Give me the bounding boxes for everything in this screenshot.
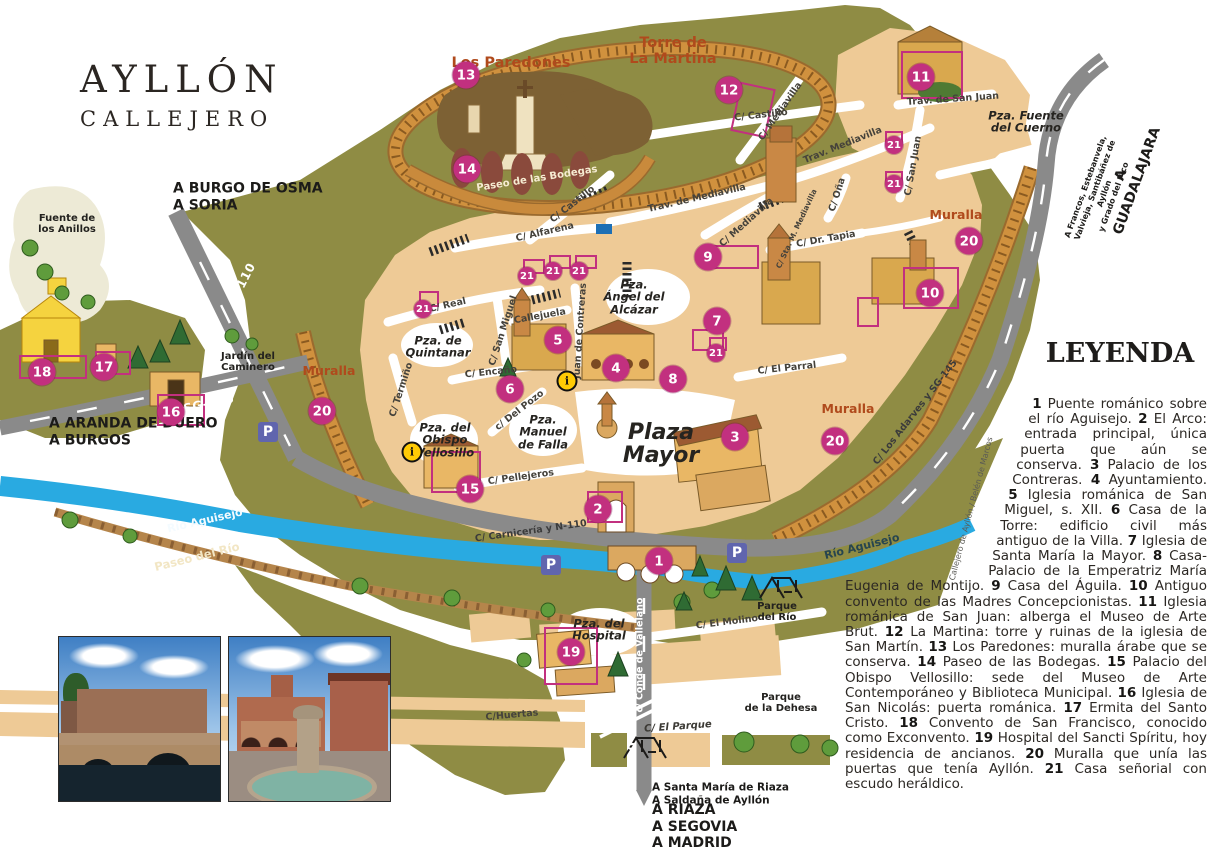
map-marker-21: 21 [414,300,432,318]
parking-icon: P [258,422,278,442]
legend-item-number: 17 [1063,700,1082,716]
map-marker-8: 8 [660,366,687,393]
map-marker-20: 20 [309,398,336,425]
photo-house [330,681,388,757]
legend-item-number: 6 [1111,502,1120,518]
legend-item-number: 15 [1107,654,1126,670]
map-marker-14: 14 [454,156,481,183]
map-marker-19: 19 [558,639,585,666]
map-marker-17: 17 [91,354,118,381]
legend-title: LEYENDA [1030,338,1210,369]
map-title: AYLLÓN CALLEJERO [80,58,260,131]
map-title-line1: AYLLÓN [80,58,260,101]
terrain-dehesa2 [591,733,627,767]
map-marker-20: 20 [956,228,983,255]
map-marker-21: 21 [707,344,725,362]
photo-fountain [297,715,319,773]
legend-item-number: 10 [1129,578,1148,594]
legend-item-number: 12 [885,624,904,640]
legend-item-number: 9 [991,578,1000,594]
map-marker-1: 1 [646,548,673,575]
ayllon-street-map: AYLLÓN CALLEJERO LEYENDA 1 Puente románi… [0,0,1210,850]
map-marker-2: 2 [585,496,612,523]
legend-body: 1 Puente románico sobre el río Aguisejo.… [845,397,1207,792]
map-marker-6: 6 [497,376,524,403]
map-marker-5: 5 [545,327,572,354]
parking-icon: P [541,555,561,575]
photo-fuente-plaza [228,636,391,802]
map-marker-9: 9 [695,244,722,271]
legend-item-number: 19 [974,730,993,746]
legend-item-number: 3 [1090,457,1099,473]
map-marker-21: 21 [570,262,588,280]
legend-item-number: 8 [1153,548,1162,564]
town-hall-symbol [596,224,612,234]
map-marker-3: 3 [722,424,749,451]
legend-item-number: 13 [928,639,947,655]
torre-la-martina [766,126,796,202]
map-marker-11: 11 [908,64,935,91]
photo-puente-romanico [58,636,221,802]
legend-item-number: 2 [1138,411,1147,427]
legend-item-number: 21 [1045,761,1064,777]
legend-item-number: 14 [917,654,936,670]
legend-item-number: 1 [1032,396,1041,412]
map-marker-20: 20 [822,428,849,455]
photo-clocktower [271,675,293,699]
map-marker-21: 21 [885,175,903,193]
map-marker-21: 21 [544,262,562,280]
map-marker-12: 12 [716,77,743,104]
legend-item-number: 16 [1117,685,1136,701]
map-marker-13: 13 [453,62,480,89]
map-marker-4: 4 [603,355,630,382]
map-marker-16: 16 [158,399,185,426]
info-icon: i [557,371,578,392]
map-marker-10: 10 [917,280,944,307]
iglesia-san-juan [898,26,962,102]
map-marker-7: 7 [704,308,731,335]
map-marker-21: 21 [518,267,536,285]
map-marker-15: 15 [457,476,484,503]
legend-item-number: 11 [1138,594,1157,610]
info-icon: i [402,442,423,463]
legend-item-number: 4 [1091,472,1100,488]
legend-item-number: 5 [1008,487,1017,503]
map-title-line2: CALLEJERO [80,107,260,131]
map-marker-21: 21 [885,136,903,154]
parking-icon: P [727,543,747,563]
photo-water [59,765,220,801]
legend-item-number: 18 [899,715,918,731]
legend-item-number: 7 [1128,533,1137,549]
legend-item-number: 20 [1025,746,1044,762]
map-marker-18: 18 [29,359,56,386]
